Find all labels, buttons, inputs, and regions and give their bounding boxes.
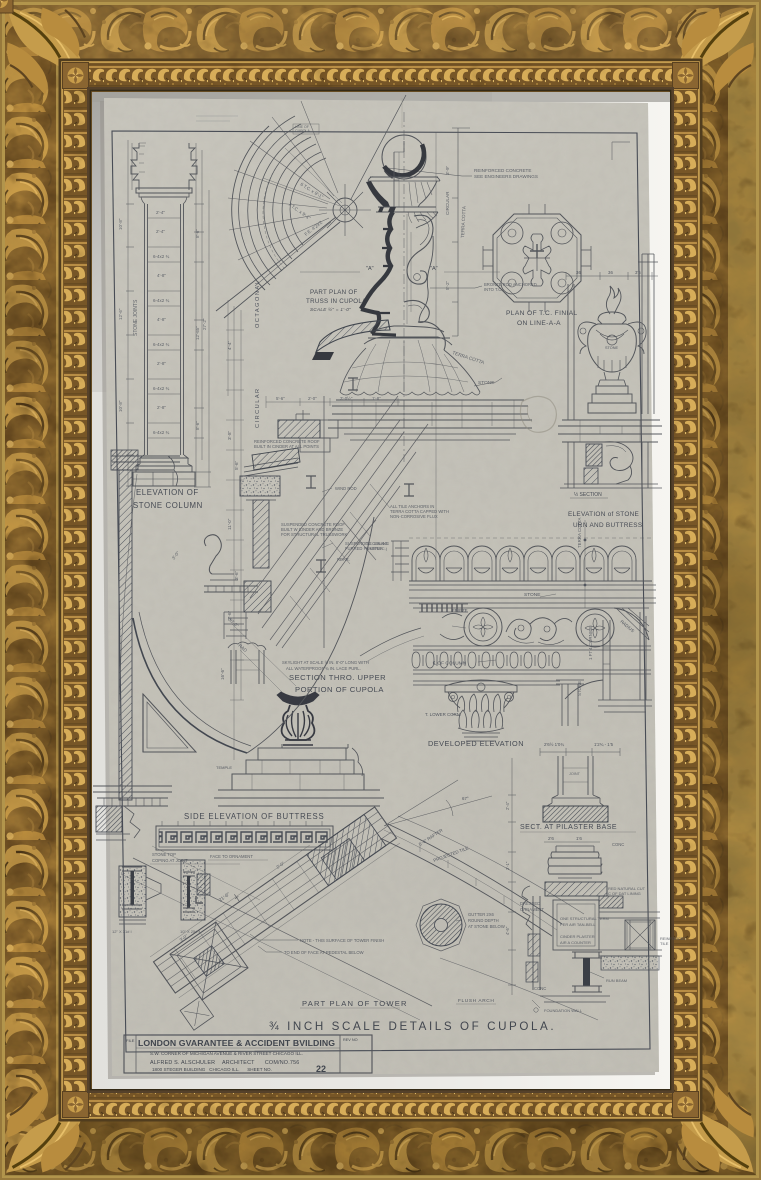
svg-text:5'-6": 5'-6" (276, 396, 285, 401)
svg-text:2'6½ 1'0¾: 2'6½ 1'0¾ (544, 742, 564, 747)
svg-text:FOUNDATION WALL: FOUNDATION WALL (544, 1008, 583, 1013)
svg-text:1'-8": 1'-8" (372, 396, 381, 401)
svg-text:36: 36 (608, 270, 613, 275)
svg-text:WIND ROD: WIND ROD (335, 486, 357, 491)
svg-text:REAR.: REAR. (337, 557, 350, 562)
svg-text:36: 36 (576, 270, 581, 275)
svg-text:SEE ENGINEERS DRAWINGS: SEE ENGINEERS DRAWINGS (474, 174, 538, 179)
svg-text:2'-0": 2'-0" (308, 396, 317, 401)
svg-text:5'-6": 5'-6" (234, 460, 239, 470)
svg-text:STONE: STONE (577, 681, 582, 696)
svg-text:T. LOWER CORN.: T. LOWER CORN. (425, 712, 461, 717)
svg-text:22: 22 (316, 1064, 326, 1074)
svg-text:3'-1": 3'-1" (505, 861, 510, 870)
svg-text:2'-8": 2'-8" (157, 361, 166, 366)
svg-text:12'-6": 12'-6" (118, 308, 123, 320)
svg-text:10'-8": 10'-8" (118, 400, 123, 412)
svg-text:CIRCULAR: CIRCULAR (445, 191, 450, 215)
svg-text:67°: 67° (462, 796, 469, 801)
svg-text:"A": "A" (430, 266, 438, 272)
svg-text:PER AIR TAN-BELL: PER AIR TAN-BELL (560, 922, 596, 927)
svg-text:C OF DAT LINING: C OF DAT LINING (608, 891, 641, 896)
svg-text:DEVELOPED ELEVATION: DEVELOPED ELEVATION (428, 739, 524, 748)
svg-text:ROUND DEPTH: ROUND DEPTH (468, 918, 499, 923)
svg-text:2'-8": 2'-8" (157, 405, 166, 410)
svg-text:3'-6": 3'-6" (234, 570, 239, 580)
svg-text:PART PLAN OF TOWER: PART PLAN OF TOWER (302, 999, 408, 1008)
svg-text:ALFRED S. ALSCHULER ARCHITE: ALFRED S. ALSCHULER ARCHITECT COM/NO.756 (150, 1060, 300, 1066)
svg-text:STONE: STONE (524, 592, 540, 598)
svg-text:4'-4": 4'-4" (227, 340, 232, 350)
svg-text:STONE JOINTS: STONE JOINTS (133, 299, 139, 336)
svg-text:LONDON GVARANTEE & ACCIDENT BV: LONDON GVARANTEE & ACCIDENT BVILDING (138, 1038, 335, 1048)
svg-text:"A": "A" (366, 266, 374, 272)
svg-text:8'-6": 8'-6" (195, 229, 200, 238)
svg-text:REV NO: REV NO (343, 1038, 358, 1042)
svg-text:AT STONE BELOW: AT STONE BELOW (468, 924, 505, 929)
svg-text:11'-0": 11'-0" (227, 518, 232, 530)
svg-text:PART PLAN OF: PART PLAN OF (310, 289, 358, 296)
svg-text:DRESSED: DRESSED (520, 901, 540, 906)
svg-text:6-4x2 ¾: 6-4x2 ¾ (153, 254, 170, 259)
svg-text:16'-6": 16'-6" (220, 668, 225, 680)
svg-text:℄ OF COLUMN: ℄ OF COLUMN (432, 661, 467, 667)
svg-text:ONE STRUCTURAL TERM: ONE STRUCTURAL TERM (560, 916, 609, 921)
svg-text:½ SECTION: ½ SECTION (574, 491, 602, 498)
svg-text:4'-8": 4'-8" (157, 317, 166, 322)
svg-text:2'6: 2'6 (548, 836, 554, 841)
svg-text:CINDER PLASTER: CINDER PLASTER (560, 934, 595, 939)
svg-text:S.W. CORNER OF MICHIGAN AVENUE: S.W. CORNER OF MICHIGAN AVENUE & RIVER S… (150, 1051, 303, 1056)
svg-text:CIRCULAR: CIRCULAR (255, 387, 261, 428)
svg-text:¾ INCH SCALE DETAILS OF CU: ¾ INCH SCALE DETAILS OF CUPOLA. (269, 1020, 556, 1033)
svg-text:PLAN OF T.C. FINIAL: PLAN OF T.C. FINIAL (506, 310, 578, 317)
svg-text:NON-CORROSIVE FLUX: NON-CORROSIVE FLUX (390, 514, 438, 519)
svg-text:STONE: STONE (478, 380, 494, 386)
svg-text:FACE TO ORNAMENT: FACE TO ORNAMENT (210, 854, 253, 859)
svg-text:ELEVATION of STONE: ELEVATION of STONE (568, 511, 639, 518)
svg-text:2'-4": 2'-4" (156, 229, 165, 234)
svg-text:STONE: STONE (605, 346, 618, 350)
svg-text:BUILT IN CINDER AT ALL POINTS: BUILT IN CINDER AT ALL POINTS (254, 444, 319, 449)
svg-text:URN AND BUTTRESS: URN AND BUTTRESS (573, 522, 642, 529)
svg-text:CONC: CONC (612, 842, 624, 847)
svg-text:TEMPLE: TEMPLE (216, 765, 232, 770)
svg-text:(TERRA C.): (TERRA C.) (366, 546, 388, 551)
svg-text:FILE: FILE (126, 1038, 135, 1043)
svg-text:2'-4": 2'-4" (156, 210, 165, 215)
svg-text:8'-6": 8'-6" (195, 421, 200, 430)
svg-text:ORNAMENT: ORNAMENT (520, 907, 544, 912)
svg-text:10'-8": 10'-8" (118, 218, 123, 230)
svg-text:TRUSS IN CUPOLA: TRUSS IN CUPOLA (306, 298, 367, 305)
svg-text:SCALE ½" = 1'-0": SCALE ½" = 1'-0" (310, 306, 351, 312)
svg-text:TILE: TILE (660, 941, 669, 946)
svg-text:REINFORCED CONCRETE: REINFORCED CONCRETE (474, 168, 531, 173)
svg-text:2'-4": 2'-4" (505, 801, 510, 810)
svg-text:AIR A COUNTER: AIR A COUNTER (560, 940, 591, 945)
svg-text:SKYLIGHT AT SCALE ½ IN. 8'-0": SKYLIGHT AT SCALE ½ IN. 8'-0" LONG WITH (282, 660, 369, 665)
svg-text:4'-8": 4'-8" (157, 273, 166, 278)
svg-text:6-4x2 ¾: 6-4x2 ¾ (153, 298, 170, 303)
svg-text:6-4x2 ¾: 6-4x2 ¾ (153, 386, 170, 391)
svg-text:FOR STRUCTURAL TRUSSWORK: FOR STRUCTURAL TRUSSWORK (281, 532, 348, 537)
svg-text:1800 STEGER BUILDING CHICAGO: 1800 STEGER BUILDING CHICAGO ILL. SHEET … (152, 1067, 272, 1072)
svg-text:TERRA COTTA: TERRA COTTA (577, 518, 582, 548)
svg-text:ELEVATION OF: ELEVATION OF (136, 488, 199, 497)
svg-text:3'-8": 3'-8" (227, 430, 232, 440)
svg-text:RUN BEAM: RUN BEAM (606, 978, 627, 983)
svg-text:6-4x2 ¾: 6-4x2 ¾ (153, 430, 170, 435)
svg-text:FRIEZE: FRIEZE (452, 608, 468, 613)
svg-text:1 FT 4 CORNICE: 1 FT 4 CORNICE (588, 626, 593, 660)
svg-text:SECTION THRO. UPPER: SECTION THRO. UPPER (289, 673, 386, 682)
svg-text:12" X 31# I: 12" X 31# I (112, 929, 132, 934)
svg-text:ON LINE-A-A: ON LINE-A-A (517, 320, 561, 327)
svg-text:1'2¾ - 1'5: 1'2¾ - 1'5 (594, 742, 614, 747)
svg-text:OCTAGONAL: OCTAGONAL (255, 280, 261, 328)
svg-text:5'-2": 5'-2" (445, 280, 450, 290)
svg-text:27'-2": 27'-2" (202, 318, 207, 330)
svg-text:SIDE ELEVATION OF BUTTRESS: SIDE ELEVATION OF BUTTRESS (184, 812, 325, 821)
svg-text:3'-0½": 3'-0½" (340, 396, 353, 401)
svg-text:12'-65": 12'-65" (195, 326, 200, 340)
svg-text:1'6: 1'6 (576, 836, 582, 841)
svg-text:3'6: 3'6 (635, 270, 641, 275)
svg-text:4'-6": 4'-6" (505, 926, 510, 935)
svg-text:SECT. AT PILASTER BASE: SECT. AT PILASTER BASE (520, 824, 617, 831)
svg-text:6-4x2 ¾: 6-4x2 ¾ (153, 342, 170, 347)
svg-text:STONE COLUMN: STONE COLUMN (133, 501, 203, 510)
svg-text:TO END OF FACE AT PEDESTAL BEL: TO END OF FACE AT PEDESTAL BELOW (284, 950, 364, 955)
svg-text:GUTTER 2X6: GUTTER 2X6 (468, 912, 494, 917)
svg-text:FLUSH ARCH: FLUSH ARCH (458, 998, 494, 1004)
svg-text:NOTE - THIS SURFACE OF TOWER F: NOTE - THIS SURFACE OF TOWER FINISH (300, 938, 384, 943)
svg-text:JOINT: JOINT (569, 772, 581, 776)
svg-text:3'-9": 3'-9" (445, 165, 450, 175)
